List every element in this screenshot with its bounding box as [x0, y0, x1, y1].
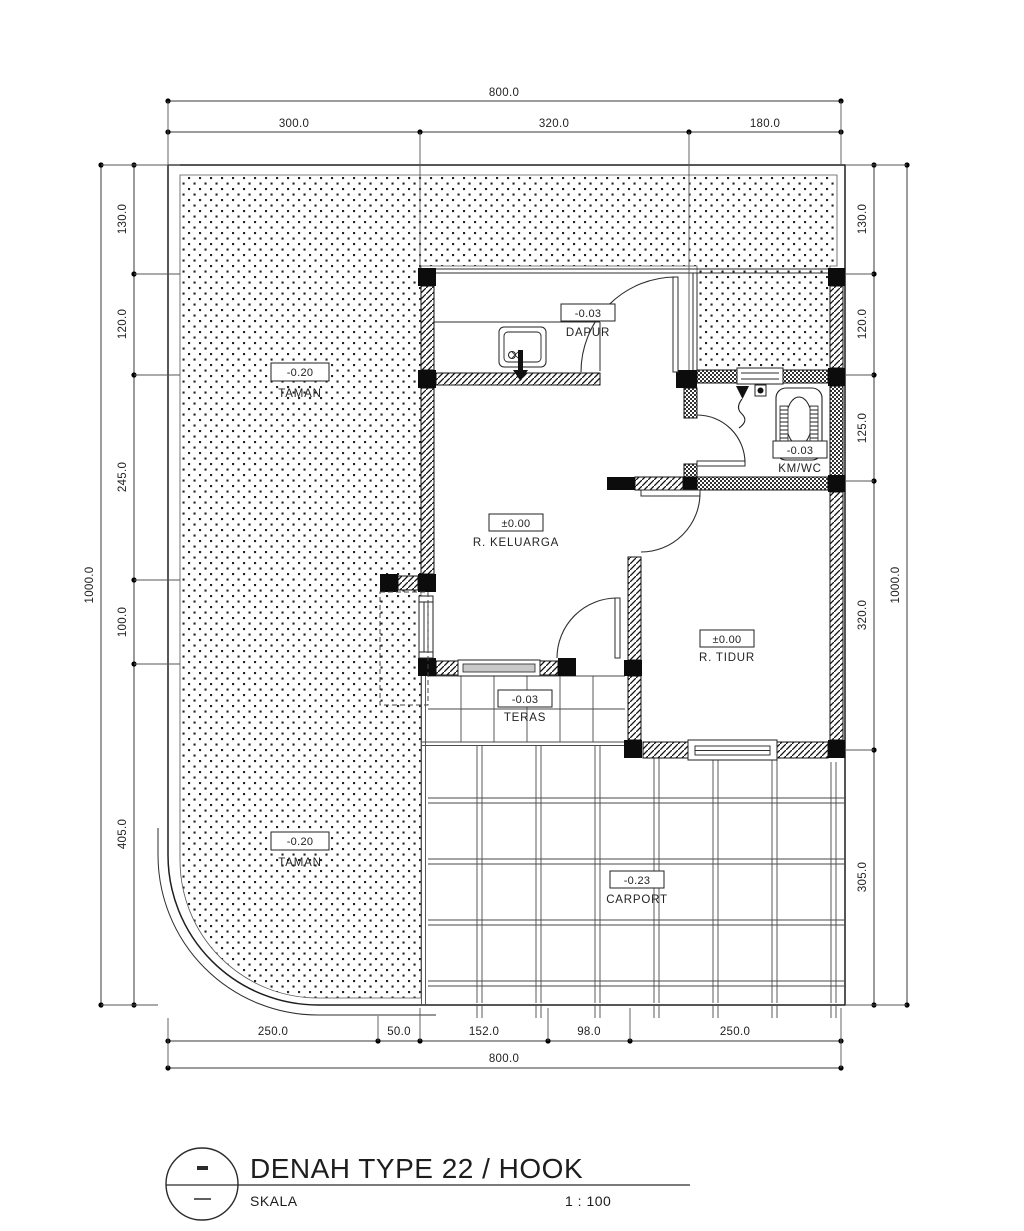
- room-name-tidur: R. TIDUR: [699, 652, 755, 664]
- dim-bottom-total: 800.0: [489, 1053, 519, 1065]
- dimension-chain-bottom: 250.0 50.0 152.0 98.0 250.0 800.0: [165, 1008, 843, 1071]
- room-name-teras: TERAS: [504, 712, 546, 724]
- level-taman-bottom: -0.20: [287, 836, 314, 848]
- room-name-dapur: DAPUR: [566, 327, 610, 339]
- label-teras: -0.03 TERAS: [498, 690, 552, 724]
- dim-top-seg-2: 180.0: [750, 118, 780, 130]
- dim-right-seg-1: 120.0: [857, 309, 869, 339]
- dim-bottom-seg-1: 50.0: [387, 1026, 411, 1038]
- dim-bottom-seg-3: 98.0: [577, 1026, 601, 1038]
- label-tidur: ±0.00 R. TIDUR: [699, 630, 755, 664]
- window-tidur-front: [688, 740, 777, 760]
- drawing-title: DENAH TYPE 22 / HOOK: [250, 1153, 583, 1184]
- dim-right-seg-4: 305.0: [857, 862, 869, 892]
- label-carport: -0.23 CARPORT: [606, 871, 668, 906]
- dim-left-seg-3: 100.0: [117, 607, 129, 637]
- room-name-carport: CARPORT: [606, 894, 668, 906]
- room-name-taman-bottom: TAMAN: [278, 857, 321, 869]
- drawing-number-dash: [197, 1166, 208, 1170]
- dim-left-seg-4: 405.0: [117, 819, 129, 849]
- bath-faucet: [736, 385, 766, 428]
- dim-right-seg-2: 125.0: [857, 413, 869, 443]
- label-keluarga: ±0.00 R. KELUARGA: [473, 514, 559, 549]
- dim-left-seg-0: 130.0: [117, 204, 129, 234]
- dim-right-seg-3: 320.0: [857, 600, 869, 630]
- label-kmwc: -0.03 KM/WC: [773, 441, 827, 475]
- label-taman-top: -0.20 TAMAN: [271, 363, 329, 400]
- dim-right-seg-0: 130.0: [857, 204, 869, 234]
- door-kmwc: [697, 415, 745, 466]
- dim-top-seg-0: 300.0: [279, 118, 309, 130]
- dim-bottom-seg-2: 152.0: [469, 1026, 499, 1038]
- dim-left-total: 1000.0: [84, 567, 96, 604]
- dimension-chain-right: 130.0 120.0 125.0 320.0 305.0 1000.0: [845, 162, 910, 1007]
- dim-right-total: 1000.0: [890, 567, 902, 604]
- room-name-taman-top: TAMAN: [278, 388, 321, 400]
- room-name-keluarga: R. KELUARGA: [473, 537, 559, 549]
- door-kitchen-service: [581, 277, 678, 372]
- label-dapur: -0.03 DAPUR: [561, 304, 615, 339]
- floor-plan-page: 800.0 300.0 320.0 180.0 250.0 50.0 152.0…: [0, 0, 1024, 1231]
- dim-top-total: 800.0: [489, 87, 519, 99]
- window-keluarga-side: [419, 596, 433, 658]
- door-tidur: [641, 490, 700, 552]
- window-keluarga-front: [458, 660, 540, 676]
- level-kmwc: -0.03: [787, 445, 814, 457]
- dim-left-seg-2: 245.0: [117, 462, 129, 492]
- dim-bottom-seg-0: 250.0: [258, 1026, 288, 1038]
- level-teras: -0.03: [512, 694, 539, 706]
- scale-label: SKALA: [250, 1193, 298, 1209]
- drawing-number-circle: [166, 1148, 238, 1220]
- level-tidur: ±0.00: [713, 634, 742, 646]
- dimension-chain-left: 130.0 120.0 245.0 100.0 405.0 1000.0: [84, 162, 180, 1007]
- dim-top-seg-1: 320.0: [539, 118, 569, 130]
- scale-value: 1 : 100: [565, 1193, 611, 1209]
- window-kmwc: [737, 368, 783, 384]
- dim-bottom-seg-4: 250.0: [720, 1026, 750, 1038]
- garden-dotted-area: [180, 175, 837, 998]
- title-block: DENAH TYPE 22 / HOOK SKALA 1 : 100: [166, 1148, 690, 1220]
- level-taman-top: -0.20: [287, 367, 314, 379]
- level-carport: -0.23: [624, 875, 651, 887]
- label-taman-bottom: -0.20 TAMAN: [271, 832, 329, 869]
- level-keluarga: ±0.00: [502, 518, 531, 530]
- dim-left-seg-1: 120.0: [117, 309, 129, 339]
- floor-plan-drawing: 800.0 300.0 320.0 180.0 250.0 50.0 152.0…: [0, 0, 1024, 1231]
- level-dapur: -0.03: [575, 308, 602, 320]
- door-front: [557, 598, 620, 658]
- room-name-kmwc: KM/WC: [778, 463, 822, 475]
- teras-tile-grid: [422, 676, 626, 1005]
